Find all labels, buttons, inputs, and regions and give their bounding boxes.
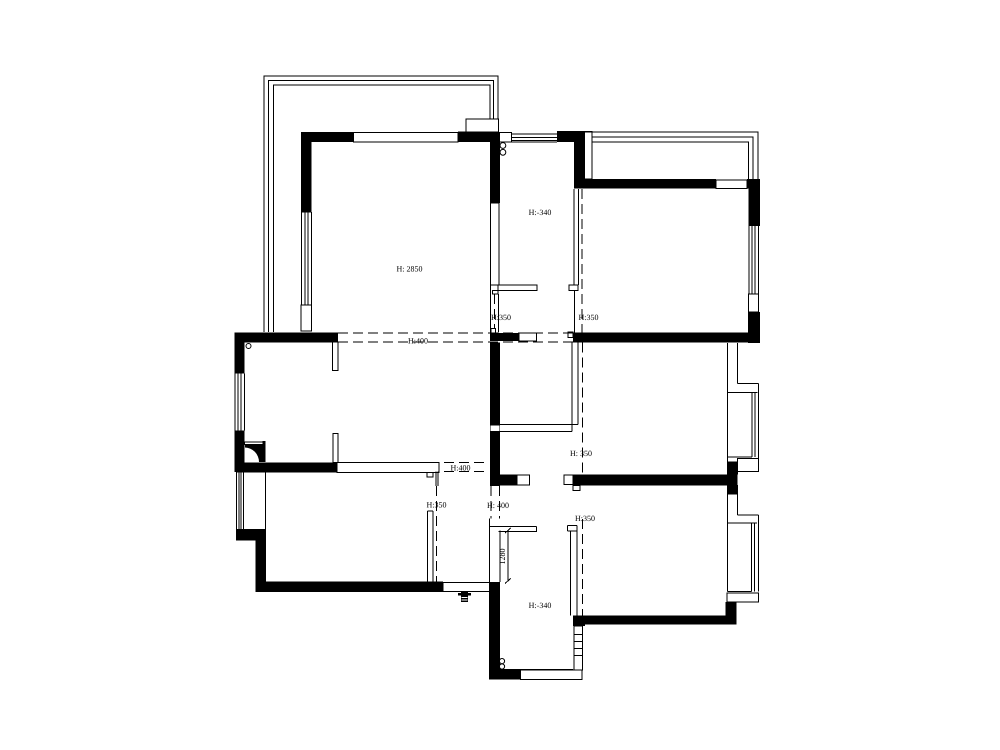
svg-text:H:350: H:350 bbox=[578, 313, 598, 322]
svg-text:H:350: H:350 bbox=[575, 514, 595, 523]
svg-text:1280: 1280 bbox=[498, 549, 507, 565]
svg-text:H:350: H:350 bbox=[426, 500, 446, 509]
svg-text:H:350: H:350 bbox=[491, 313, 511, 322]
svg-text:H: 2850: H: 2850 bbox=[396, 264, 422, 273]
svg-text:H:-340: H:-340 bbox=[529, 601, 552, 610]
svg-text:H:400: H:400 bbox=[408, 336, 428, 345]
svg-text:H: 400: H: 400 bbox=[487, 501, 509, 510]
svg-text:H: 350: H: 350 bbox=[570, 449, 592, 458]
svg-text:H:400: H:400 bbox=[450, 463, 470, 472]
svg-text:H:-340: H:-340 bbox=[529, 208, 552, 217]
